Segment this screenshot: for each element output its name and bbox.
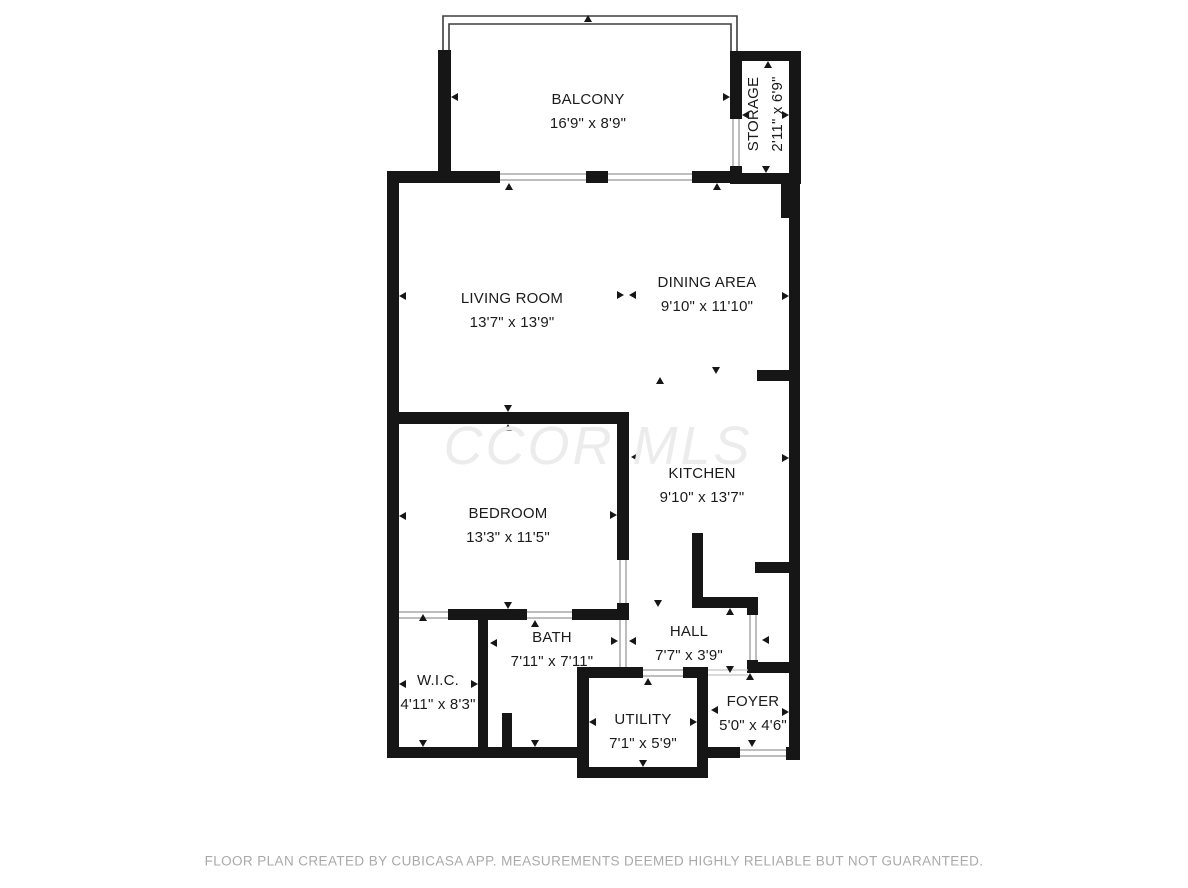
room-label-utility: UTILITY 7'1" x 5'9" [609, 708, 677, 756]
room-label-kitchen: KITCHEN 9'10" x 13'7" [660, 462, 745, 510]
footer-disclaimer: FLOOR PLAN CREATED BY CUBICASA APP. MEAS… [205, 854, 984, 869]
room-label-hall: HALL 7'7" x 3'9" [655, 620, 723, 668]
room-dimensions: 7'11" x 7'11" [511, 650, 594, 674]
wall [789, 51, 801, 184]
room-label-living-room: LIVING ROOM 13'7" x 13'9" [461, 287, 563, 335]
wall [781, 178, 790, 218]
wall [577, 767, 708, 778]
room-dimensions: 4'11" x 8'3" [400, 693, 475, 717]
wall [757, 370, 790, 381]
wall [692, 533, 703, 608]
measure-arrow-icon [654, 600, 662, 607]
measure-arrow-icon [504, 405, 512, 412]
wall [755, 662, 790, 673]
measure-arrow-icon [451, 93, 458, 101]
room-dimensions: 16'9" x 8'9" [550, 112, 626, 136]
measure-arrow-icon [690, 718, 697, 726]
measure-arrow-icon [746, 673, 754, 680]
wall [478, 613, 488, 758]
measure-arrow-icon [531, 740, 539, 747]
wall [387, 747, 577, 758]
wall [697, 667, 708, 778]
wall [692, 171, 741, 183]
measure-arrow-icon [656, 377, 664, 384]
measure-arrow-icon [712, 367, 720, 374]
measure-arrow-icon [644, 678, 652, 685]
room-dimensions: 7'1" x 5'9" [609, 732, 677, 756]
measure-arrow-icon [610, 511, 617, 519]
room-dimensions: 9'10" x 13'7" [660, 486, 745, 510]
room-name: LIVING ROOM [461, 290, 563, 307]
room-name: W.I.C. [417, 672, 459, 689]
measure-arrow-icon [504, 602, 512, 609]
room-label-wic: W.I.C. 4'11" x 8'3" [400, 669, 475, 717]
room-label-storage: STORAGE 2'11" x 6'9" [742, 76, 790, 151]
wall [789, 173, 800, 760]
wall [589, 667, 643, 678]
room-name: HALL [670, 623, 708, 640]
measure-arrow-icon [589, 718, 596, 726]
wall [730, 51, 742, 119]
room-label-dining-area: DINING AREA 9'10" x 11'10" [658, 271, 757, 319]
wall [387, 171, 399, 758]
room-dimensions: 13'3" x 11'5" [466, 526, 550, 550]
measure-arrow-icon [762, 166, 770, 173]
measure-arrow-icon [782, 454, 789, 462]
wall [586, 171, 608, 183]
measure-arrow-icon [399, 512, 406, 520]
wall [572, 609, 629, 620]
room-name: BATH [532, 629, 572, 646]
room-label-bath: BATH 7'11" x 7'11" [511, 626, 594, 674]
room-label-balcony: BALCONY 16'9" x 8'9" [550, 88, 626, 136]
measure-arrow-icon [748, 740, 756, 747]
measure-arrow-icon [762, 636, 769, 644]
wall [577, 667, 589, 778]
room-name: KITCHEN [668, 465, 735, 482]
measure-arrow-icon [782, 292, 789, 300]
room-label-foyer: FOYER 5'0" x 4'6" [719, 690, 787, 738]
measure-arrow-icon [711, 706, 718, 714]
wall [755, 562, 790, 573]
measure-arrow-icon [764, 61, 772, 68]
wall [747, 597, 758, 615]
room-dimensions: 2'11" x 6'9" [766, 76, 790, 151]
room-name: DINING AREA [658, 274, 757, 291]
measure-arrow-icon [617, 291, 624, 299]
room-name: FOYER [727, 693, 780, 710]
room-name: BALCONY [551, 91, 624, 108]
room-label-bedroom: BEDROOM 13'3" x 11'5" [466, 502, 550, 550]
measure-arrow-icon [629, 291, 636, 299]
floor-plan-page: CCOR MLS BALCONY 16'9" x 8'9" STORAGE 2'… [0, 0, 1188, 888]
room-name: STORAGE [745, 77, 762, 151]
measure-arrow-icon [629, 637, 636, 645]
measure-arrow-icon [723, 93, 730, 101]
room-name: UTILITY [614, 711, 671, 728]
wall [786, 747, 800, 760]
measure-arrow-icon [505, 183, 513, 190]
room-dimensions: 9'10" x 11'10" [658, 295, 757, 319]
wall [438, 50, 451, 172]
measure-arrow-icon [726, 608, 734, 615]
measure-arrow-icon [639, 760, 647, 767]
room-dimensions: 5'0" x 4'6" [719, 714, 787, 738]
measure-arrow-icon [611, 637, 618, 645]
room-dimensions: 13'7" x 13'9" [461, 311, 563, 335]
measure-arrow-icon [713, 183, 721, 190]
measure-arrow-icon [399, 292, 406, 300]
wall [387, 171, 500, 183]
wall [708, 747, 740, 758]
measure-arrow-icon [490, 639, 497, 647]
room-name: BEDROOM [469, 505, 548, 522]
measure-arrow-icon [419, 740, 427, 747]
room-dimensions: 7'7" x 3'9" [655, 644, 723, 668]
